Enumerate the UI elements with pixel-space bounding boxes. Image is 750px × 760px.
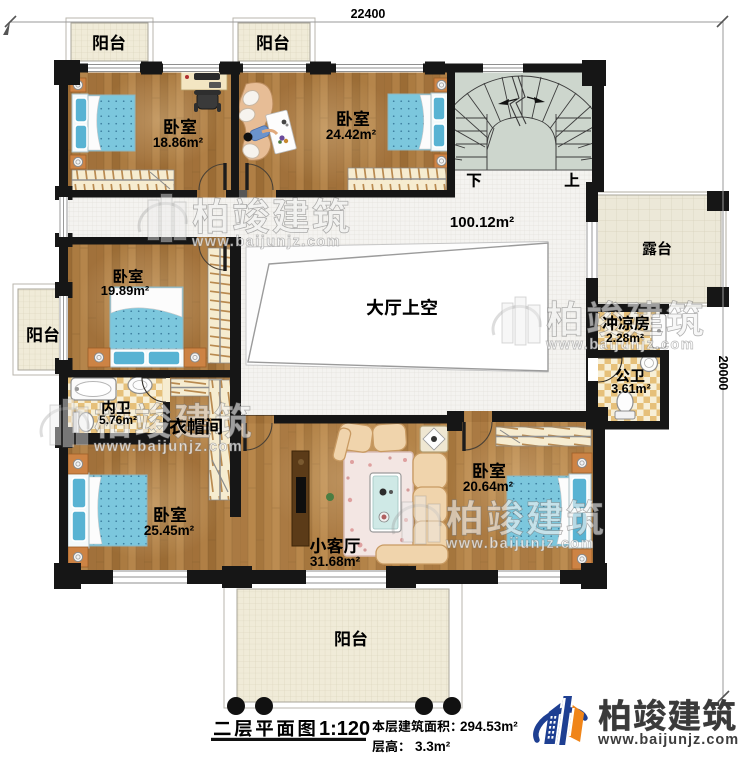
svg-text:31.68m²: 31.68m² <box>310 554 361 569</box>
svg-text:www.baijunjz.com: www.baijunjz.com <box>93 439 243 455</box>
svg-text:20.64m²: 20.64m² <box>463 479 514 494</box>
svg-text:5.76m²: 5.76m² <box>99 413 137 427</box>
svg-text:100.12m²: 100.12m² <box>450 214 514 231</box>
svg-text:www.baijunjz.com: www.baijunjz.com <box>597 732 739 748</box>
svg-text:24.42m²: 24.42m² <box>326 127 377 142</box>
svg-text:18.86m²: 18.86m² <box>153 135 204 150</box>
svg-text:3.3m²: 3.3m² <box>415 739 451 754</box>
svg-text:25.45m²: 25.45m² <box>144 523 195 538</box>
svg-text:1:120: 1:120 <box>319 718 370 740</box>
svg-text:22400: 22400 <box>351 7 386 21</box>
svg-text:3.61m²: 3.61m² <box>611 382 651 396</box>
svg-text:20000: 20000 <box>716 356 730 391</box>
svg-text:www.baijunjz.com: www.baijunjz.com <box>445 536 595 552</box>
svg-text:19.89m²: 19.89m² <box>101 283 150 298</box>
svg-text:2.28m²: 2.28m² <box>606 331 644 345</box>
svg-text:294.53m²: 294.53m² <box>460 719 518 734</box>
svg-text:www.baijunjz.com: www.baijunjz.com <box>191 234 341 250</box>
